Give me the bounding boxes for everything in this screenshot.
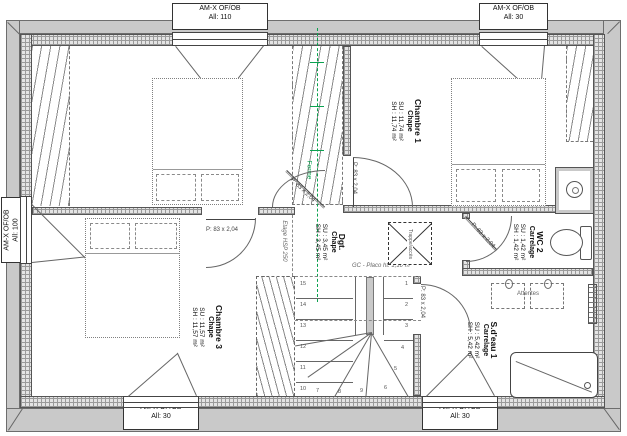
bed-chambre1 (451, 78, 546, 206)
pillow (201, 174, 239, 201)
room-finish: Carrelage (527, 224, 535, 260)
blanket-line (452, 164, 545, 165)
window-left (20, 196, 32, 264)
window-top-left (172, 32, 268, 46)
window-label-top-left: AM-X OF/OB All: 110 (172, 3, 268, 30)
casement-swing (128, 353, 178, 396)
step-number: 9 (360, 388, 363, 394)
tap-icon (544, 279, 552, 289)
truss-tick (310, 106, 324, 107)
window-top-right (479, 32, 548, 46)
truss-line (317, 28, 318, 302)
step-number: 5 (394, 366, 397, 372)
step-number: 7 (316, 388, 319, 394)
room-su: SU : 5,42 m² (473, 322, 481, 359)
duct-circle-icon (566, 181, 583, 198)
truss-tick (310, 150, 324, 151)
knee-strip-chambre2 (32, 46, 70, 206)
step-number: 6 (384, 385, 387, 391)
room-sh: SH : 3,45 m² (313, 224, 321, 260)
pillow (156, 174, 196, 201)
step-number: 1 (405, 281, 408, 287)
stair-stringer (383, 277, 384, 335)
room-finish: Chape (329, 224, 337, 260)
room-label-chambre1: Chambre 1 Chape SU : 11,74 m² SH : 11,74… (389, 99, 423, 143)
stair-tread (384, 298, 413, 299)
door-size-chambre3: P: 83 x 2,04 (206, 227, 238, 233)
window-sill: All: 30 (423, 413, 497, 422)
room-su: SU : 3,45 m² (321, 224, 329, 260)
attic-hatch-label: Trappe/accès (407, 227, 413, 259)
room-su: SU : 1,42 m² (519, 224, 527, 260)
casement-swing (177, 353, 197, 396)
step-number: 4 (401, 345, 404, 351)
staircase (295, 276, 421, 397)
room-su: SU : 11,57 m² (198, 305, 206, 349)
step-number: 12 (300, 344, 306, 350)
wall-wc2-south (462, 268, 593, 276)
attentes-label: Attentes (496, 291, 560, 297)
step-number: 10 (300, 386, 306, 392)
blanket-line (86, 253, 179, 254)
window-sill: All: 30 (124, 413, 198, 422)
room-sh: SH : 11,57 m² (190, 305, 198, 349)
pillow (456, 169, 496, 202)
truss-tick (310, 62, 324, 63)
wall-chambre2-south-right (258, 207, 295, 215)
bed-chambre3 (85, 218, 180, 338)
window-type: AM-X OF/OB (173, 5, 267, 14)
step-number: 11 (300, 365, 306, 371)
shower-tray-icon (510, 352, 598, 398)
bed-chambre2 (152, 78, 243, 205)
door-size-chambre1: P: 83 x 2,04 (351, 162, 357, 194)
stair-tread (296, 382, 353, 383)
pillow (90, 223, 130, 249)
window-label-left: AM-X OF/OB All: 100 (1, 197, 22, 263)
etage-hsp-label: Etage HSP 250 (281, 220, 287, 261)
casement-swing (426, 352, 471, 397)
partition-dgt-west (292, 215, 293, 276)
room-sh: SH : 11,74 m² (389, 99, 397, 143)
room-finish: Chape (206, 305, 214, 349)
window-sill: All: 30 (480, 14, 547, 23)
toilet-bowl-icon (550, 229, 583, 256)
stair-stringer (355, 277, 356, 335)
stair-tread (296, 298, 353, 299)
door-swing-sdeau1 (421, 284, 471, 332)
tap-icon (505, 279, 513, 289)
attic-hatch: Trappe/accès (388, 222, 432, 265)
stair-tread (384, 340, 413, 341)
eave-band-right (603, 20, 621, 432)
room-label-chambre3: Chambre 3 Chape SU : 11,57 m² SH : 11,57… (190, 305, 224, 349)
stair-winder (371, 333, 411, 397)
room-name: WC 2 (535, 224, 545, 260)
room-label-dgt: Dgt. Chape SU : 3,45 m² SH : 3,45 m² (313, 224, 347, 260)
step-number: 14 (300, 302, 306, 308)
casement-swing (32, 256, 87, 263)
door-swing-chambre1 (353, 157, 413, 207)
room-name: Chambre 3 (214, 305, 224, 349)
floor-plan: Ferme AM-X OF/OB All: 110 AM-X OF/OB All… (0, 0, 627, 436)
stair-tread (296, 361, 353, 362)
knee-strip-chambre1 (566, 46, 593, 142)
window-bottom-left (123, 396, 199, 408)
room-name: Dgt. (337, 224, 347, 260)
window-sill: All: 100 (12, 198, 21, 262)
stair-ceiling-line (295, 320, 421, 321)
shower-diagonal (516, 361, 592, 393)
room-finish: Chape (405, 99, 413, 143)
door-swing-chambre3 (206, 218, 256, 268)
wall-chambre1-west (343, 46, 351, 156)
room-su: SU : 11,74 m² (397, 99, 405, 143)
room-sh: SH : 1,42 m² (511, 224, 519, 260)
shower-drain (584, 382, 591, 389)
room-label-wc2: WC 2 Carrelage SU : 1,42 m² SH : 1,42 m² (511, 224, 545, 260)
window-type: AM-X OF/OB (480, 5, 547, 14)
eave-band-bottom (6, 408, 621, 432)
step-number: 2 (405, 302, 408, 308)
room-name: Chambre 1 (413, 99, 423, 143)
towel-radiator-icon (588, 284, 597, 324)
stairs-railing-wall (256, 276, 295, 396)
window-label-top-right: AM-X OF/OB All: 30 (479, 3, 548, 30)
pillow (502, 169, 540, 202)
stair-newel (366, 277, 374, 335)
window-sill: All: 110 (173, 14, 267, 23)
step-number: 13 (300, 323, 306, 329)
window-type: AM-X OF/OB (3, 198, 12, 262)
pillow (135, 223, 177, 249)
step-number: 8 (338, 389, 341, 395)
room-name: S.d'eau 1 (489, 322, 499, 359)
blanket-line (153, 169, 242, 170)
room-finish: Carrelage (481, 322, 489, 359)
step-number: 3 (405, 323, 408, 329)
step-number: 15 (300, 281, 306, 287)
wall-chambre2-south-left (32, 207, 202, 215)
stair-winder (308, 332, 372, 378)
window-bottom-right (422, 396, 498, 408)
